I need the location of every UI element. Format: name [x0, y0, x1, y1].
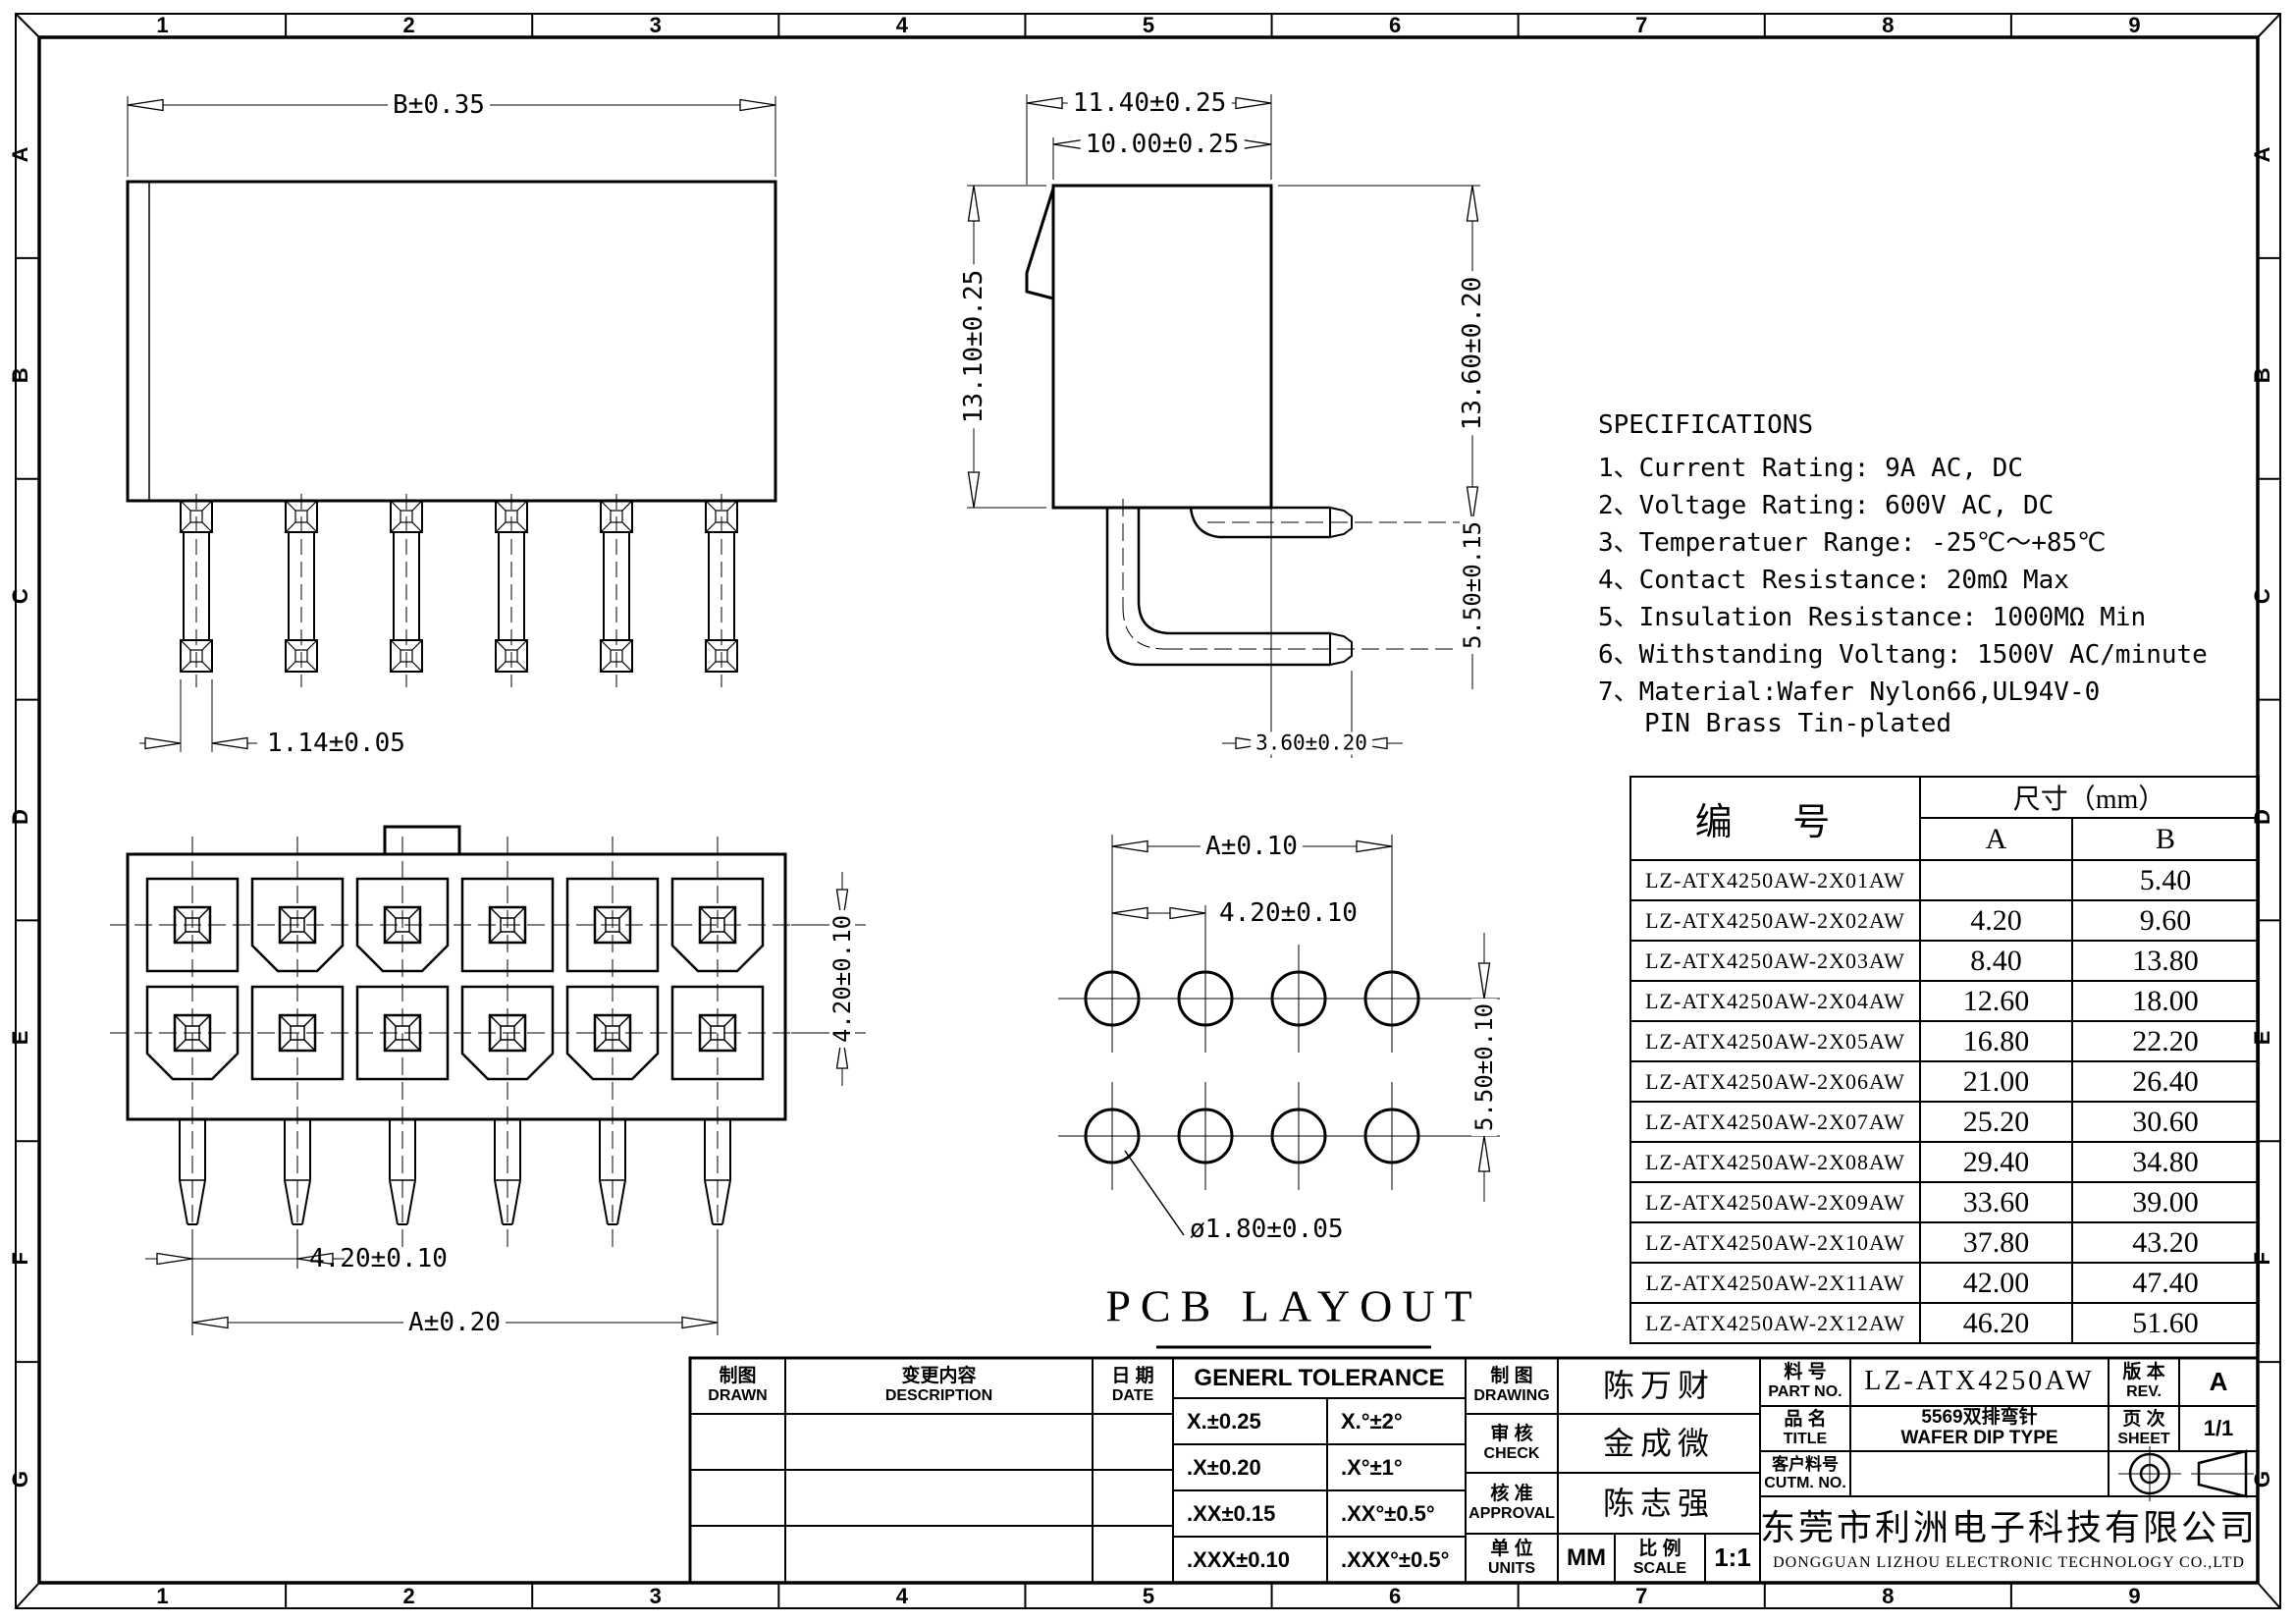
- svg-text:6: 6: [1389, 13, 1401, 37]
- revision-header-drawn: 制图 DRAWN: [690, 1358, 785, 1414]
- tolerance-angular: X.°±2°: [1327, 1398, 1466, 1444]
- dim-pcb-total: A±0.10: [1201, 833, 1303, 860]
- label-title: 品 名 TITLE: [1760, 1406, 1850, 1451]
- spec-item: 6、Withstanding Voltang: 1500V AC/minute: [1598, 634, 2208, 672]
- svg-text:8: 8: [1882, 13, 1894, 37]
- svg-text:F: F: [8, 1252, 32, 1265]
- svg-text:9: 9: [2128, 1584, 2140, 1608]
- svg-text:7: 7: [1635, 13, 1647, 37]
- dim-side-tail: 3.60±0.20: [1251, 732, 1372, 755]
- parts-table-cell: LZ-ATX4250AW-2X04AW: [1630, 981, 1920, 1021]
- label-rev: 版 本 REV.: [2109, 1358, 2179, 1406]
- dim-top-pin-width: 1.14±0.05: [267, 731, 405, 756]
- parts-table-cell: 42.00: [1920, 1263, 2072, 1303]
- spec-item: 5、Insulation Resistance: 1000MΩ Min: [1598, 597, 2208, 634]
- parts-table-cell: 25.20: [1920, 1102, 2072, 1142]
- parts-header-a: A: [1920, 818, 2072, 860]
- approval-name: 陈志强: [1558, 1473, 1760, 1534]
- dim-pcb-hole-dia: ø1.80±0.05: [1190, 1217, 1344, 1242]
- parts-table-cell: LZ-ATX4250AW-2X08AW: [1630, 1142, 1920, 1182]
- parts-table-cell: 30.60: [2072, 1102, 2259, 1142]
- spec-item: 2、Voltage Rating: 600V AC, DC: [1598, 485, 2208, 522]
- parts-table-cell: 4.20: [1920, 900, 2072, 941]
- svg-text:2: 2: [403, 13, 415, 37]
- parts-table-cell: [1920, 860, 2072, 900]
- parts-table-cell: LZ-ATX4250AW-2X01AW: [1630, 860, 1920, 900]
- parts-table-cell: 12.60: [1920, 981, 2072, 1021]
- parts-table-cell: 37.80: [1920, 1222, 2072, 1263]
- dim-front-pitch-y: 4.20±0.10: [829, 910, 855, 1048]
- parts-table-row: LZ-ATX4250AW-2X05AW16.8022.20: [1630, 1021, 2259, 1061]
- svg-text:6: 6: [1389, 1584, 1401, 1608]
- svg-text:9: 9: [2128, 13, 2140, 37]
- dim-pcb-pitch: 4.20±0.10: [1219, 900, 1358, 926]
- parts-table-row: LZ-ATX4250AW-2X10AW37.8043.20: [1630, 1222, 2259, 1263]
- parts-table-cell: 47.40: [2072, 1263, 2259, 1303]
- tolerance-angular: .X°±1°: [1327, 1444, 1466, 1490]
- svg-text:4: 4: [896, 13, 909, 37]
- svg-text:C: C: [8, 588, 32, 604]
- label-approval: 核 准 APPROVAL: [1466, 1473, 1558, 1534]
- parts-table-cell: 43.20: [2072, 1222, 2259, 1263]
- tolerance-title: GENERL TOLERANCE: [1173, 1358, 1466, 1398]
- parts-table-row: LZ-ATX4250AW-2X06AW21.0026.40: [1630, 1061, 2259, 1102]
- svg-text:1: 1: [156, 13, 168, 37]
- parts-table-cell: 5.40: [2072, 860, 2259, 900]
- parts-header-b: B: [2072, 818, 2259, 860]
- svg-text:C: C: [2250, 588, 2274, 604]
- parts-table-row: LZ-ATX4250AW-2X09AW33.6039.00: [1630, 1182, 2259, 1222]
- rev-value: A: [2179, 1358, 2258, 1406]
- parts-table-cell: LZ-ATX4250AW-2X12AW: [1630, 1303, 1920, 1343]
- svg-text:B: B: [2250, 367, 2274, 383]
- label-part-no: 料 号 PART NO.: [1760, 1358, 1850, 1406]
- svg-text:1: 1: [156, 1584, 168, 1608]
- parts-table-row: LZ-ATX4250AW-2X01AW5.40: [1630, 860, 2259, 900]
- company-name-en: DONGGUAN LIZHOU ELECTRONIC TECHNOLOGY CO…: [1773, 1554, 2245, 1572]
- tolerance-linear: .XXX±0.10: [1173, 1537, 1327, 1583]
- svg-text:4: 4: [896, 1584, 909, 1608]
- dim-top-width: B±0.35: [388, 91, 490, 119]
- parts-table-row: LZ-ATX4250AW-2X04AW12.6018.00: [1630, 981, 2259, 1021]
- sheet-value: 1/1: [2179, 1406, 2258, 1451]
- parts-table-cell: 46.20: [1920, 1303, 2072, 1343]
- parts-header-size: 尺寸（mm）: [1920, 777, 2259, 818]
- pcb-layout-title: PCB LAYOUT: [1105, 1280, 1481, 1332]
- parts-table-cell: 9.60: [2072, 900, 2259, 941]
- parts-table-row: LZ-ATX4250AW-2X08AW29.4034.80: [1630, 1142, 2259, 1182]
- label-drawing: 制 图 DRAWING: [1466, 1358, 1558, 1414]
- specifications-block: SPECIFICATIONS 1、Current Rating: 9A AC, …: [1598, 410, 2208, 746]
- check-name: 金成微: [1558, 1414, 1760, 1473]
- parts-table-row: LZ-ATX4250AW-2X11AW42.0047.40: [1630, 1263, 2259, 1303]
- label-units: 单 位 UNITS: [1466, 1534, 1558, 1583]
- svg-text:G: G: [8, 1471, 32, 1488]
- svg-text:B: B: [8, 367, 32, 383]
- dim-side-body: 10.00±0.25: [1081, 131, 1245, 158]
- parts-table-row: LZ-ATX4250AW-2X03AW8.4013.80: [1630, 941, 2259, 981]
- svg-text:D: D: [8, 809, 32, 825]
- parts-size-table: 编 号 尺寸（mm） A B LZ-ATX4250AW-2X01AW5.40LZ…: [1629, 776, 2260, 1344]
- parts-table-cell: 39.00: [2072, 1182, 2259, 1222]
- tolerance-linear: .XX±0.15: [1173, 1490, 1327, 1537]
- parts-table-cell: LZ-ATX4250AW-2X06AW: [1630, 1061, 1920, 1102]
- svg-text:5: 5: [1143, 1584, 1154, 1608]
- dim-side-height: 13.10±0.25: [960, 265, 988, 429]
- svg-text:E: E: [8, 1031, 32, 1046]
- tolerance-angular: .XX°±0.5°: [1327, 1490, 1466, 1537]
- parts-table-row: LZ-ATX4250AW-2X02AW4.209.60: [1630, 900, 2259, 941]
- svg-text:A: A: [8, 146, 32, 162]
- parts-table-cell: 13.80: [2072, 941, 2259, 981]
- svg-text:5: 5: [1143, 13, 1154, 37]
- svg-text:3: 3: [650, 13, 662, 37]
- spec-item: 1、Current Rating: 9A AC, DC: [1598, 448, 2208, 485]
- parts-table-cell: LZ-ATX4250AW-2X07AW: [1630, 1102, 1920, 1142]
- parts-table-cell: 26.40: [2072, 1061, 2259, 1102]
- parts-table-cell: 33.60: [1920, 1182, 2072, 1222]
- parts-table-cell: 21.00: [1920, 1061, 2072, 1102]
- scale-value: 1:1: [1705, 1534, 1760, 1583]
- parts-table-cell: LZ-ATX4250AW-2X11AW: [1630, 1263, 1920, 1303]
- drawing-name: 陈万财: [1558, 1358, 1760, 1414]
- dim-side-row-pitch: 5.50±0.15: [1460, 516, 1485, 654]
- revision-header-date: 日 期 DATE: [1093, 1358, 1173, 1414]
- parts-table-cell: LZ-ATX4250AW-2X05AW: [1630, 1021, 1920, 1061]
- parts-table-cell: LZ-ATX4250AW-2X03AW: [1630, 941, 1920, 981]
- company-block: 东莞市利洲电子科技有限公司 DONGGUAN LIZHOU ELECTRONIC…: [1760, 1496, 2258, 1583]
- label-customer-no: 客户料号 CUTM. NO.: [1760, 1451, 1850, 1496]
- dim-front-total: A±0.20: [403, 1309, 506, 1336]
- svg-text:8: 8: [1882, 1584, 1894, 1608]
- spec-item: 7、Material:Wafer Nylon66,UL94V-0: [1598, 672, 2208, 709]
- dim-side-total: 11.40±0.25: [1068, 89, 1232, 117]
- parts-table-cell: LZ-ATX4250AW-2X09AW: [1630, 1182, 1920, 1222]
- revision-header-description: 变更内容 DESCRIPTION: [785, 1358, 1093, 1414]
- dim-pcb-row-pitch: 5.50±0.10: [1471, 999, 1497, 1136]
- engineering-drawing-sheet: 112233445566778899AABBCCDDEEFFGG B±0.35 …: [0, 0, 2296, 1624]
- tolerance-linear: X.±0.25: [1173, 1398, 1327, 1444]
- specifications-title: SPECIFICATIONS: [1598, 410, 2208, 448]
- tolerance-angular: .XXX°±0.5°: [1327, 1537, 1466, 1583]
- spec-item: 4、Contact Resistance: 20mΩ Max: [1598, 560, 2208, 597]
- units-value: MM: [1558, 1534, 1615, 1583]
- specifications-list: 1、Current Rating: 9A AC, DC2、Voltage Rat…: [1598, 448, 2208, 746]
- company-name-cn: 东莞市利洲电子科技有限公司: [1760, 1507, 2258, 1547]
- label-scale: 比 例 SCALE: [1615, 1534, 1705, 1583]
- parts-table-cell: 22.20: [2072, 1021, 2259, 1061]
- parts-table-cell: LZ-ATX4250AW-2X02AW: [1630, 900, 1920, 941]
- parts-table-cell: 34.80: [2072, 1142, 2259, 1182]
- svg-text:3: 3: [650, 1584, 662, 1608]
- parts-table-cell: 8.40: [1920, 941, 2072, 981]
- parts-table-cell: 18.00: [2072, 981, 2259, 1021]
- parts-table-cell: 16.80: [1920, 1021, 2072, 1061]
- parts-table-row: LZ-ATX4250AW-2X07AW25.2030.60: [1630, 1102, 2259, 1142]
- label-sheet: 页 次 SHEET: [2109, 1406, 2179, 1451]
- dim-side-pin-height: 13.60±0.20: [1459, 272, 1486, 436]
- dim-front-pitch-x: 4.20±0.10: [309, 1246, 448, 1272]
- svg-text:2: 2: [403, 1584, 415, 1608]
- label-check: 审 核 CHECK: [1466, 1414, 1558, 1473]
- spec-item: PIN Brass Tin-plated: [1598, 709, 2208, 746]
- svg-text:7: 7: [1635, 1584, 1647, 1608]
- spec-item: 3、Temperatuer Range: -25℃～+85℃: [1598, 522, 2208, 560]
- parts-table-row: LZ-ATX4250AW-2X12AW46.2051.60: [1630, 1303, 2259, 1343]
- tolerance-linear: .X±0.20: [1173, 1444, 1327, 1490]
- parts-table-cell: 51.60: [2072, 1303, 2259, 1343]
- parts-table-cell: 29.40: [1920, 1142, 2072, 1182]
- part-title-value: 5569双排弯针 WAFER DIP TYPE: [1850, 1406, 2109, 1451]
- svg-text:A: A: [2250, 146, 2274, 162]
- part-no-value: LZ-ATX4250AW: [1850, 1358, 2109, 1406]
- parts-header-part-no: 编 号: [1630, 777, 1920, 860]
- parts-table-cell: LZ-ATX4250AW-2X10AW: [1630, 1222, 1920, 1263]
